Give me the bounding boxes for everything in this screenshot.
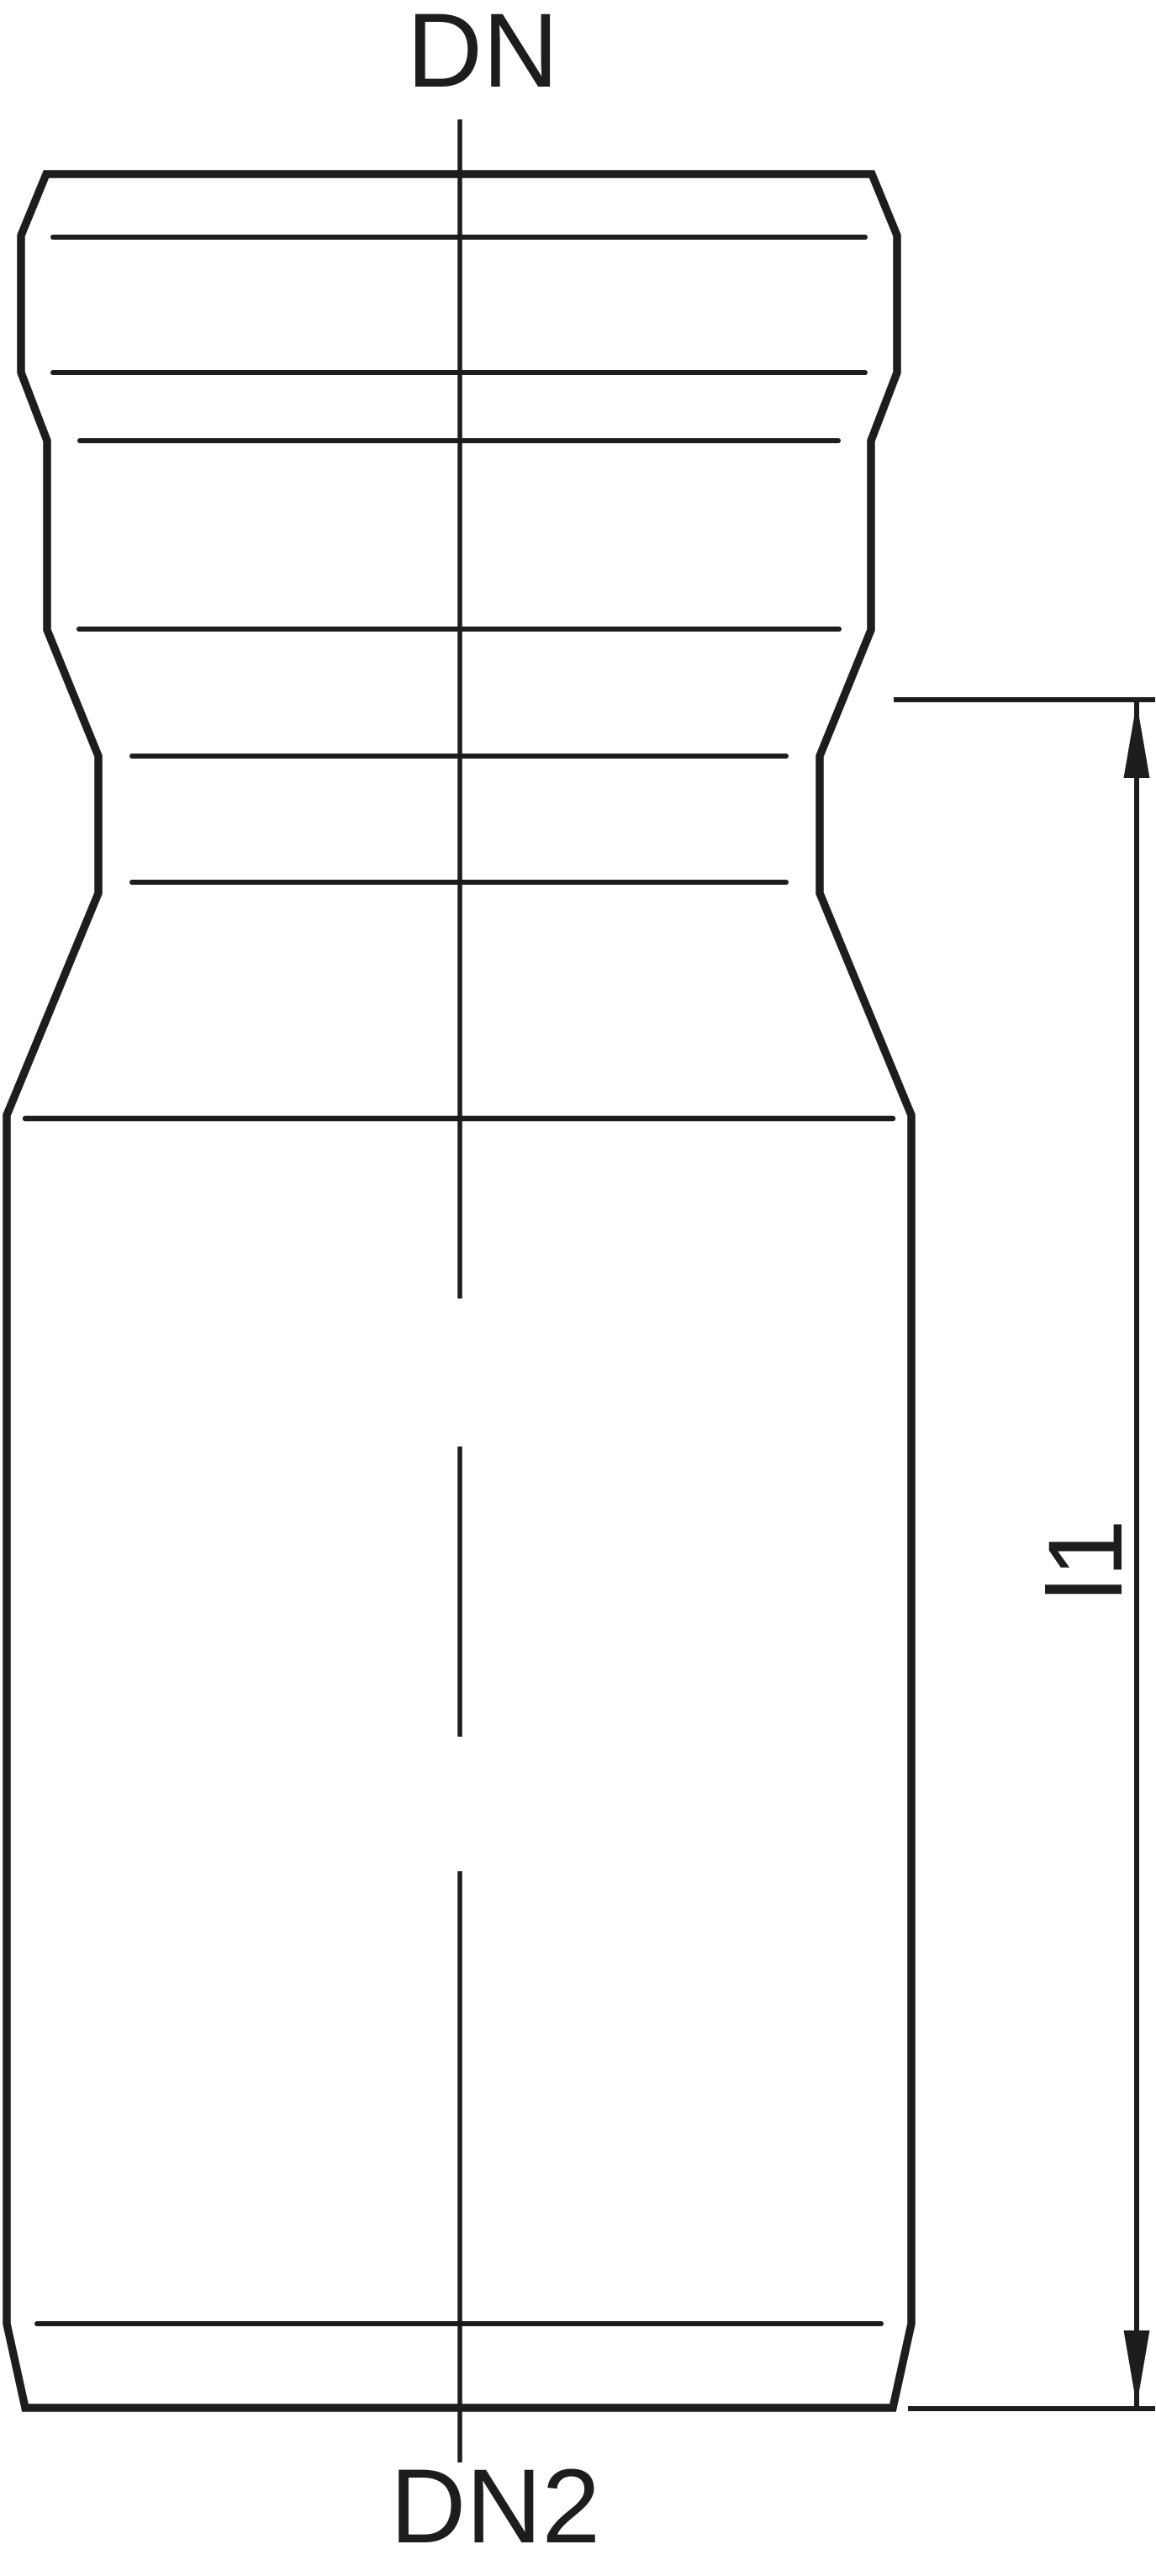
label-dn: DN [407, 0, 559, 109]
pipe-fitting-drawing: DNDN2l1 [0, 0, 1156, 2576]
technical-drawing-page: DNDN2l1 [0, 0, 1156, 2576]
label-dn2: DN2 [390, 2448, 600, 2565]
drawing-background [0, 0, 1156, 2576]
label-l1: l1 [1027, 1519, 1144, 1600]
